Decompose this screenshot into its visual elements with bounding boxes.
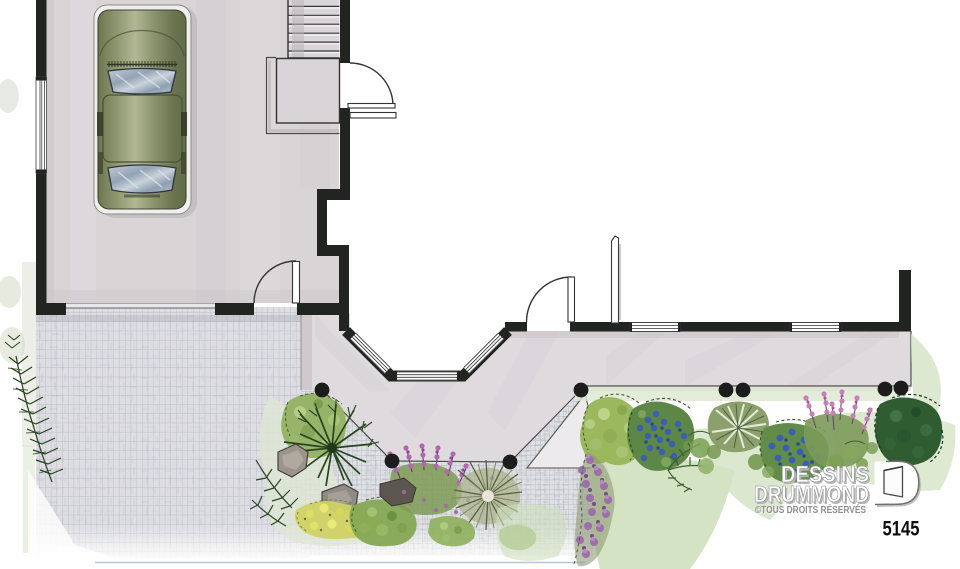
svg-text:5145: 5145: [883, 518, 920, 541]
svg-text:©TOUS DROITS RÉSERVÉS: ©TOUS DROITS RÉSERVÉS: [755, 503, 866, 516]
